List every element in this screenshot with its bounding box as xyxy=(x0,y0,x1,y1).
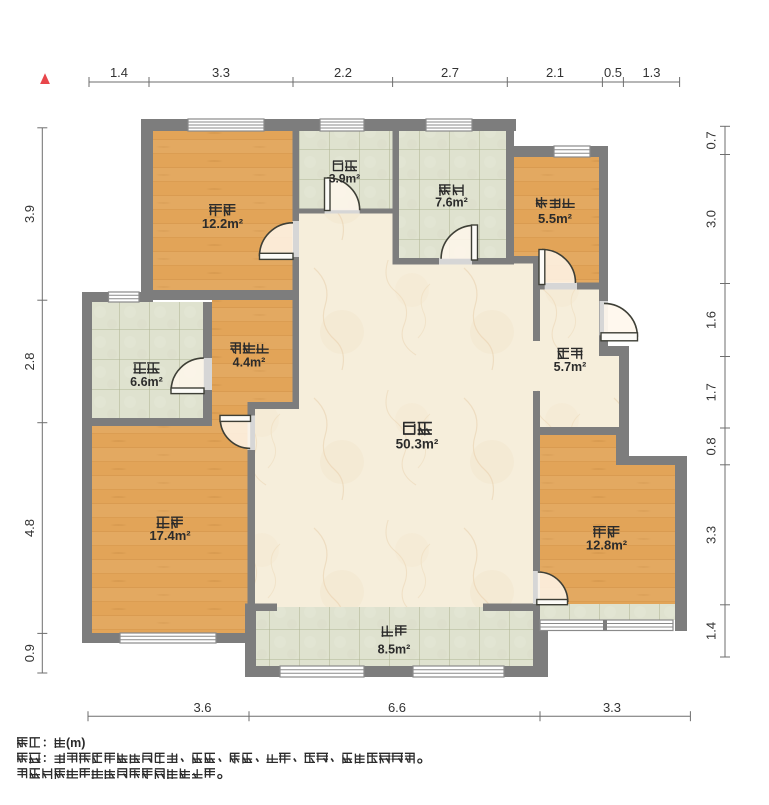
svg-text:5.5m²: 5.5m² xyxy=(538,211,573,226)
svg-text:3.3: 3.3 xyxy=(212,65,230,80)
svg-text:4.8: 4.8 xyxy=(22,519,37,537)
svg-text:1.4: 1.4 xyxy=(704,622,719,640)
svg-text:7.6m²: 7.6m² xyxy=(435,196,468,210)
svg-text:0.5: 0.5 xyxy=(604,65,622,80)
svg-text:1.7: 1.7 xyxy=(704,383,719,401)
svg-text:3.6: 3.6 xyxy=(193,700,211,715)
svg-text:12.2m²: 12.2m² xyxy=(202,216,244,231)
svg-text:0.8: 0.8 xyxy=(704,437,719,455)
svg-text:3.3: 3.3 xyxy=(704,526,719,544)
svg-text:2.2: 2.2 xyxy=(334,65,352,80)
svg-text:50.3m²: 50.3m² xyxy=(396,436,439,451)
svg-text:1.6: 1.6 xyxy=(704,311,719,329)
svg-text:0.9: 0.9 xyxy=(22,644,37,662)
svg-text:2.7: 2.7 xyxy=(441,65,459,80)
svg-text:1.3: 1.3 xyxy=(642,65,660,80)
svg-text:2.1: 2.1 xyxy=(546,65,564,80)
svg-text:8.5m²: 8.5m² xyxy=(378,643,411,657)
svg-text:6.6: 6.6 xyxy=(388,700,406,715)
svg-text:3.9m²: 3.9m² xyxy=(329,171,360,185)
svg-text:4.4m²: 4.4m² xyxy=(233,356,266,370)
svg-text:3.0: 3.0 xyxy=(704,210,719,228)
svg-text:(m): (m) xyxy=(66,736,85,750)
svg-text:1.4: 1.4 xyxy=(110,65,128,80)
svg-text:12.8m²: 12.8m² xyxy=(586,538,628,553)
svg-text:3.3: 3.3 xyxy=(603,700,621,715)
svg-text:2.8: 2.8 xyxy=(22,352,37,370)
svg-text:0.7: 0.7 xyxy=(704,131,719,149)
svg-text:6.6m²: 6.6m² xyxy=(130,375,163,389)
svg-text:3.9: 3.9 xyxy=(22,205,37,223)
svg-text:17.4m²: 17.4m² xyxy=(149,528,191,543)
svg-text:5.7m²: 5.7m² xyxy=(554,360,587,374)
